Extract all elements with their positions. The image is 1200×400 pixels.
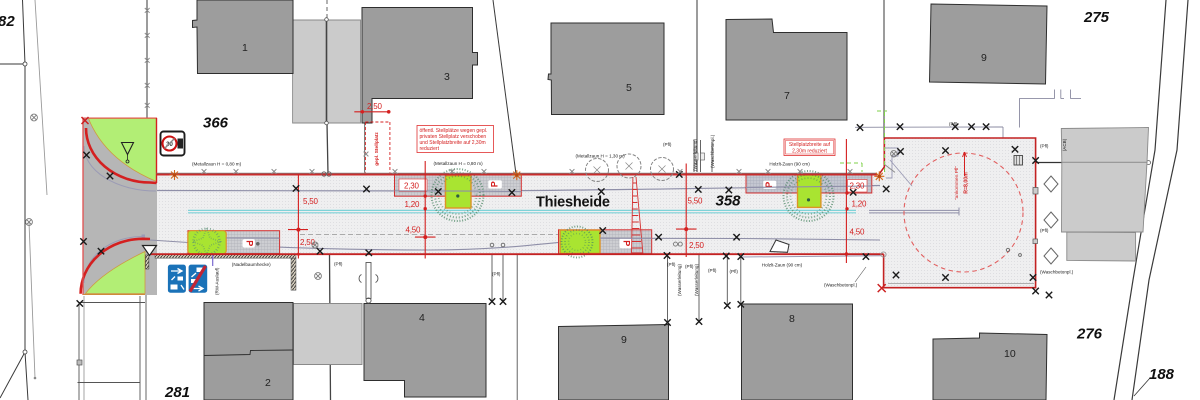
svg-text:Thiesheide: Thiesheide bbox=[536, 195, 610, 211]
svg-text:(Metallzaun H = 0,80 m): (Metallzaun H = 0,80 m) bbox=[434, 161, 484, 166]
svg-text:(Waschbetonpl.): (Waschbetonpl.) bbox=[824, 282, 858, 287]
svg-text:P: P bbox=[489, 181, 499, 187]
svg-text:2,30m reduziert: 2,30m reduziert bbox=[792, 149, 827, 155]
svg-text:(Metallzaun H = 1,30 m): (Metallzaun H = 1,30 m) bbox=[576, 153, 626, 158]
svg-text:4,50: 4,50 bbox=[406, 226, 422, 235]
svg-text:(Pfl): (Pfl) bbox=[492, 272, 501, 277]
svg-text:reduziert: reduziert bbox=[420, 146, 440, 152]
svg-text:(Pfl): (Pfl) bbox=[685, 264, 694, 269]
svg-text:275: 275 bbox=[1083, 9, 1110, 26]
svg-text:1: 1 bbox=[242, 42, 248, 54]
svg-text:Stellplatzbreite auf: Stellplatzbreite auf bbox=[789, 142, 831, 148]
svg-text:5: 5 bbox=[626, 82, 632, 94]
svg-text:(Pfl): (Pfl) bbox=[663, 142, 672, 147]
svg-text:9: 9 bbox=[621, 334, 627, 346]
svg-text:8: 8 bbox=[789, 313, 795, 325]
svg-text:R=8,00m: R=8,00m bbox=[964, 172, 970, 194]
svg-text:7: 7 bbox=[784, 90, 790, 102]
svg-text:2,30: 2,30 bbox=[850, 182, 866, 191]
svg-text:5,50: 5,50 bbox=[303, 197, 319, 206]
svg-text:''ankommen Pfl'': ''ankommen Pfl'' bbox=[954, 166, 960, 200]
svg-text:(Pfl): (Pfl) bbox=[334, 262, 343, 267]
svg-text:(Pfl): (Pfl) bbox=[730, 269, 739, 274]
svg-text:P: P bbox=[621, 240, 631, 246]
svg-text:(Pfl): (Pfl) bbox=[667, 262, 676, 267]
svg-text:1,20: 1,20 bbox=[405, 200, 421, 209]
svg-text:(Pfl): (Pfl) bbox=[1040, 228, 1049, 233]
svg-text:3: 3 bbox=[444, 71, 450, 83]
svg-text:5,50: 5,50 bbox=[688, 197, 704, 206]
svg-text:(ACB): (ACB) bbox=[1062, 138, 1067, 151]
svg-text:gepl. Stellplatz: gepl. Stellplatz bbox=[374, 132, 380, 166]
svg-text:188: 188 bbox=[1149, 366, 1175, 383]
svg-text:(Waschbetonpl.): (Waschbetonpl.) bbox=[1040, 270, 1074, 275]
svg-text:(Wasserleitung): (Wasserleitung) bbox=[694, 264, 699, 296]
svg-text:4,50: 4,50 bbox=[850, 228, 866, 237]
svg-text:276: 276 bbox=[1076, 326, 1103, 343]
svg-text:2,30: 2,30 bbox=[404, 182, 420, 191]
svg-text:Holzlt-Zaun (90 cm): Holzlt-Zaun (90 cm) bbox=[762, 262, 803, 267]
svg-text:P: P bbox=[244, 240, 254, 246]
svg-text:(Wasserleitung): (Wasserleitung) bbox=[693, 139, 698, 171]
svg-text:2,50: 2,50 bbox=[689, 241, 705, 250]
svg-text:Holzlt-Zaun (90 cm): Holzlt-Zaun (90 cm) bbox=[769, 161, 810, 166]
svg-text:366: 366 bbox=[203, 115, 229, 132]
svg-text:(RW-Auslauf): (RW-Auslauf) bbox=[215, 267, 220, 295]
svg-text:281: 281 bbox=[164, 384, 190, 400]
svg-text:1,20: 1,20 bbox=[852, 200, 868, 209]
svg-text:358: 358 bbox=[716, 193, 742, 210]
svg-text:9: 9 bbox=[981, 52, 987, 64]
svg-text:(Pfl): (Pfl) bbox=[708, 268, 717, 273]
svg-text:2: 2 bbox=[265, 377, 271, 389]
svg-text:10: 10 bbox=[1004, 348, 1016, 360]
svg-text:(Pfl): (Pfl) bbox=[1040, 144, 1049, 149]
svg-text:(Waschbetonpl.): (Waschbetonpl.) bbox=[710, 134, 715, 168]
svg-text:(Wasserleitung): (Wasserleitung) bbox=[677, 264, 682, 296]
svg-text:2,50: 2,50 bbox=[367, 102, 383, 111]
svg-text:(Nadelbaumhecke): (Nadelbaumhecke) bbox=[232, 262, 271, 267]
svg-text:4: 4 bbox=[419, 312, 425, 324]
svg-text:(Pfl): (Pfl) bbox=[949, 122, 958, 127]
svg-text:(Metallzaun H = 0,80 m): (Metallzaun H = 0,80 m) bbox=[192, 161, 242, 166]
svg-text:82: 82 bbox=[0, 13, 15, 30]
